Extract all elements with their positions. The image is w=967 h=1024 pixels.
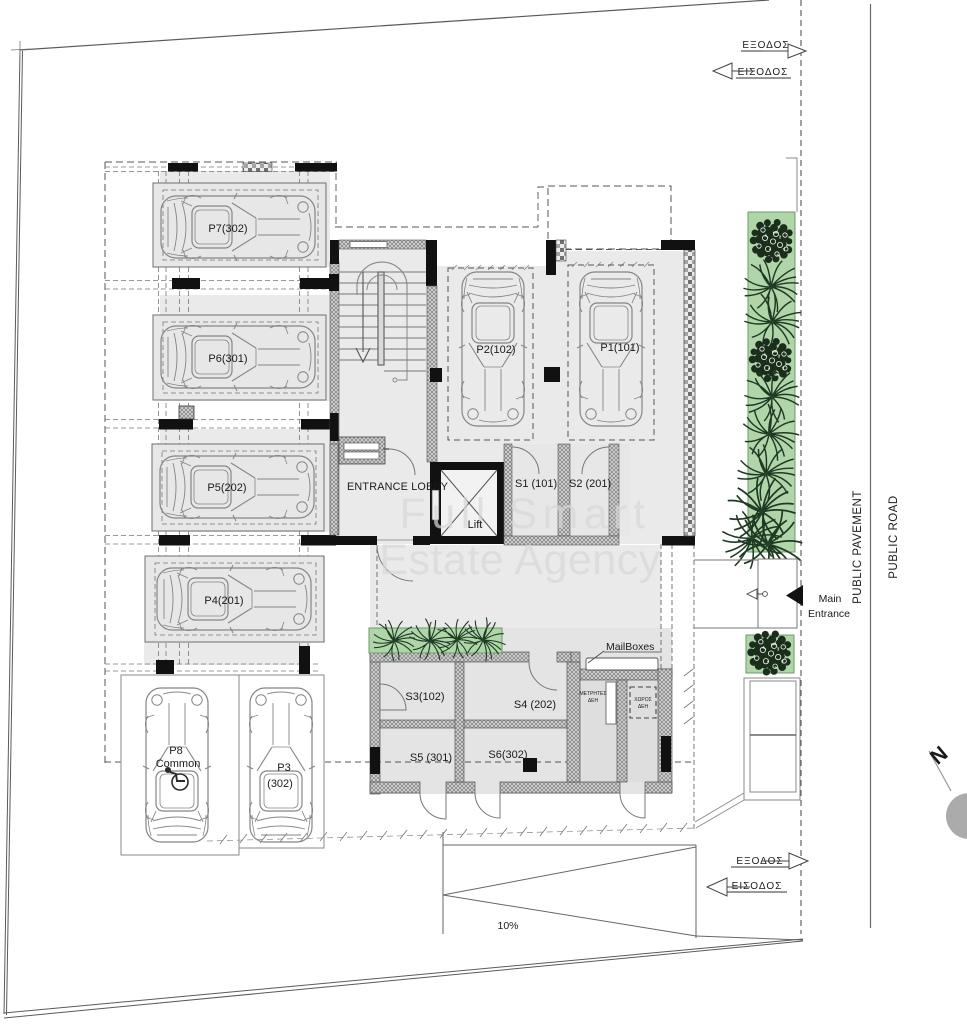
svg-text:S6(302): S6(302) [488,749,527,761]
svg-text:P7(302): P7(302) [208,223,247,235]
svg-text:Lift: Lift [468,519,483,531]
svg-text:PUBLIC PAVEMENT: PUBLIC PAVEMENT [852,490,864,604]
svg-text:Main: Main [819,593,842,605]
svg-text:P1(101): P1(101) [600,342,639,354]
svg-text:PUBLIC ROAD: PUBLIC ROAD [888,495,900,578]
svg-text:ΕΞΟΔΟΣ: ΕΞΟΔΟΣ [742,40,789,51]
svg-text:ENTRANCE LOBBY: ENTRANCE LOBBY [347,481,448,493]
svg-text:Common: Common [156,758,201,770]
svg-text:ΔΕΗ: ΔΕΗ [638,704,649,710]
svg-text:S4 (202): S4 (202) [514,699,556,711]
svg-text:ΔΕΗ: ΔΕΗ [588,698,599,704]
svg-text:Full Smart: Full Smart [400,490,651,538]
svg-text:S3(102): S3(102) [405,691,444,703]
svg-text:P3: P3 [277,762,290,774]
svg-text:ΜΕΤΡΗΤΕΣ: ΜΕΤΡΗΤΕΣ [580,691,607,697]
svg-text:(302): (302) [267,778,293,790]
svg-text:ΕΙΣΟΔΟΣ: ΕΙΣΟΔΟΣ [738,67,789,78]
svg-text:Estate Agency: Estate Agency [379,536,660,584]
svg-text:10%: 10% [497,920,518,932]
svg-text:S1 (101): S1 (101) [515,478,557,490]
svg-text:S5 (301): S5 (301) [410,752,452,764]
svg-text:P2(102): P2(102) [476,344,515,356]
svg-text:S2 (201): S2 (201) [569,478,611,490]
svg-text:MailBoxes: MailBoxes [606,641,654,653]
svg-text:ΧΩΡΟΣ: ΧΩΡΟΣ [634,697,651,703]
svg-text:P8: P8 [169,745,182,757]
svg-text:P4(201): P4(201) [204,595,243,607]
svg-text:Entrance: Entrance [808,608,850,620]
svg-text:P5(202): P5(202) [207,482,246,494]
svg-text:P6(301): P6(301) [208,353,247,365]
